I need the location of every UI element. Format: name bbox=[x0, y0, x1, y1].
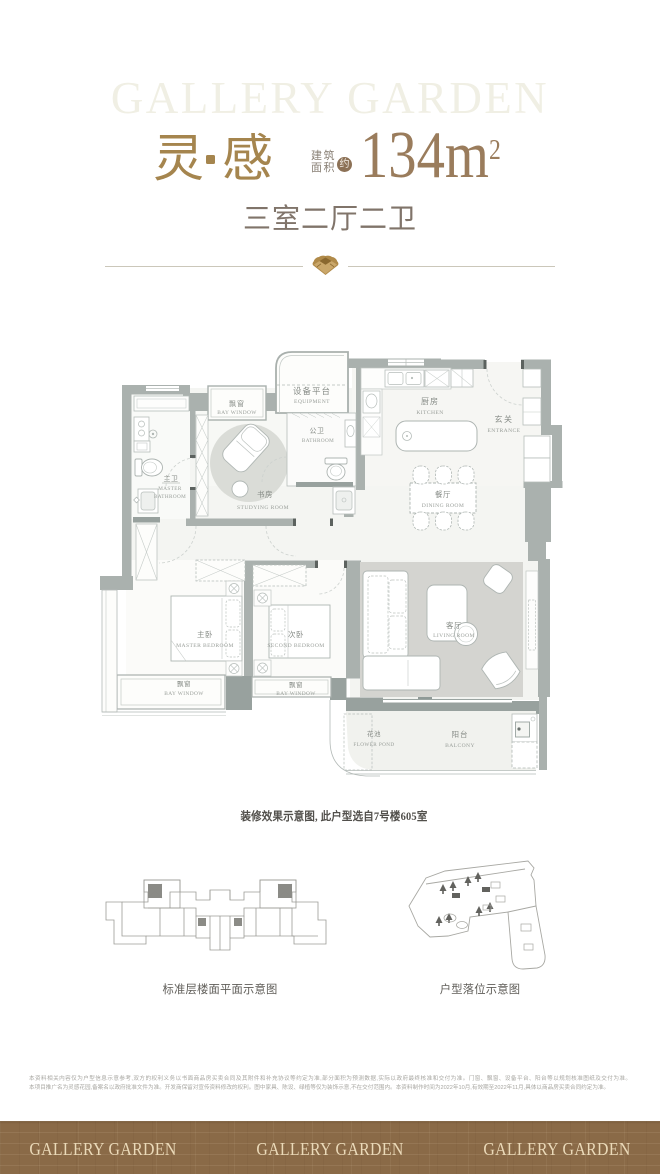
svg-text:BATHROOM: BATHROOM bbox=[302, 438, 334, 444]
svg-text:BALCONY: BALCONY bbox=[445, 743, 475, 749]
svg-text:飘窗: 飘窗 bbox=[177, 679, 191, 688]
svg-text:BAY WINDOW: BAY WINDOW bbox=[217, 410, 257, 416]
svg-text:LIVING ROOM: LIVING ROOM bbox=[433, 633, 475, 639]
svg-text:花池: 花池 bbox=[367, 729, 381, 738]
svg-text:玄关: 玄关 bbox=[495, 414, 514, 424]
svg-text:主卫: 主卫 bbox=[164, 474, 179, 483]
svg-text:FLOWER POND: FLOWER POND bbox=[353, 742, 394, 748]
svg-text:EQUIPMENT: EQUIPMENT bbox=[294, 399, 330, 405]
svg-text:厨房: 厨房 bbox=[421, 396, 439, 406]
svg-text:MASTER: MASTER bbox=[158, 486, 182, 492]
svg-text:公卫: 公卫 bbox=[310, 427, 325, 435]
svg-text:BAY WINDOW: BAY WINDOW bbox=[164, 691, 204, 697]
svg-text:BAY WINDOW: BAY WINDOW bbox=[276, 691, 316, 697]
svg-text:SECOND BEDROOM: SECOND BEDROOM bbox=[267, 643, 324, 649]
svg-text:飘窗: 飘窗 bbox=[289, 680, 303, 689]
svg-text:次卧: 次卧 bbox=[288, 629, 304, 639]
svg-text:设备平台: 设备平台 bbox=[293, 386, 331, 396]
svg-text:飘窗: 飘窗 bbox=[229, 399, 245, 408]
svg-text:BATHROOM: BATHROOM bbox=[154, 494, 186, 500]
svg-text:阳台: 阳台 bbox=[452, 729, 469, 739]
svg-text:主卧: 主卧 bbox=[197, 629, 213, 639]
svg-text:书房: 书房 bbox=[257, 489, 273, 499]
svg-text:STUDYING ROOM: STUDYING ROOM bbox=[237, 505, 289, 511]
svg-text:ENTRANCE: ENTRANCE bbox=[487, 428, 520, 434]
svg-text:餐厅: 餐厅 bbox=[435, 490, 451, 499]
svg-text:MASTER BEDROOM: MASTER BEDROOM bbox=[176, 643, 234, 649]
svg-text:客厅: 客厅 bbox=[446, 620, 462, 630]
svg-text:DINING ROOM: DINING ROOM bbox=[422, 503, 464, 509]
svg-text:KITCHEN: KITCHEN bbox=[416, 410, 443, 416]
